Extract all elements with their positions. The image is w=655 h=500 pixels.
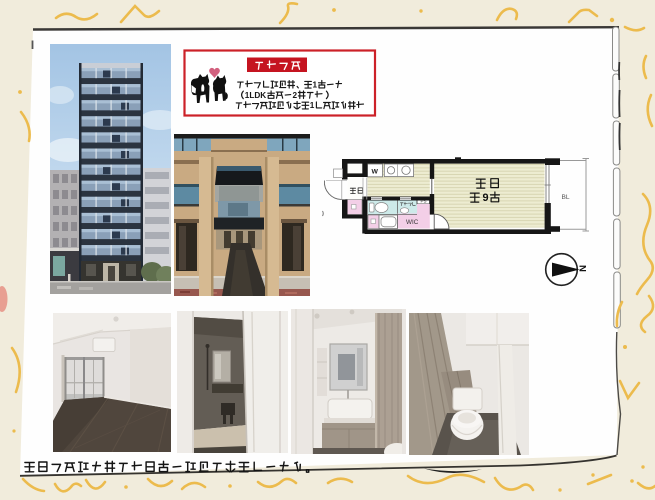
svg-text:N: N [577,265,588,272]
svg-text:BL: BL [562,194,570,201]
svg-text:1: 1 [310,101,315,110]
svg-text:WIC: WIC [406,219,419,226]
svg-text:1LDK: 1LDK [245,91,266,100]
svg-text:2: 2 [293,91,298,100]
svg-text:9: 9 [483,192,489,204]
svg-text:1: 1 [313,80,318,89]
svg-text:W: W [372,169,379,176]
